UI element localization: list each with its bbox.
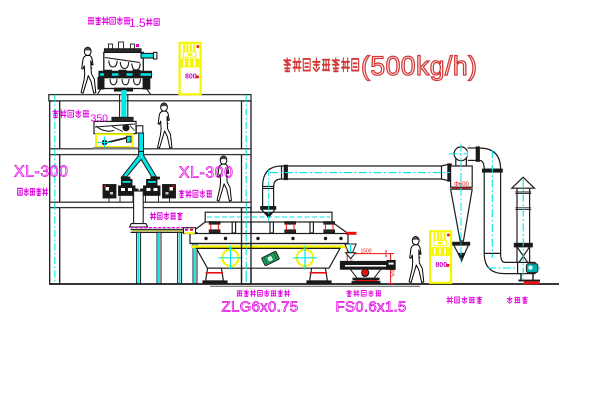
- svg-text:800: 800: [436, 262, 448, 269]
- svg-text:FS0.6x1.5: FS0.6x1.5: [336, 299, 407, 316]
- svg-text:XL-300: XL-300: [179, 165, 234, 182]
- svg-text:Φ600: Φ600: [454, 182, 469, 188]
- svg-text:1500: 1500: [360, 249, 371, 255]
- svg-text:350: 350: [91, 113, 109, 125]
- svg-text:XL-300: XL-300: [14, 164, 69, 181]
- svg-text:(500kg/h): (500kg/h): [361, 51, 477, 81]
- svg-text:800: 800: [185, 74, 197, 81]
- svg-text:ZLG6x0.75: ZLG6x0.75: [222, 299, 299, 316]
- svg-text:1.5: 1.5: [129, 16, 146, 30]
